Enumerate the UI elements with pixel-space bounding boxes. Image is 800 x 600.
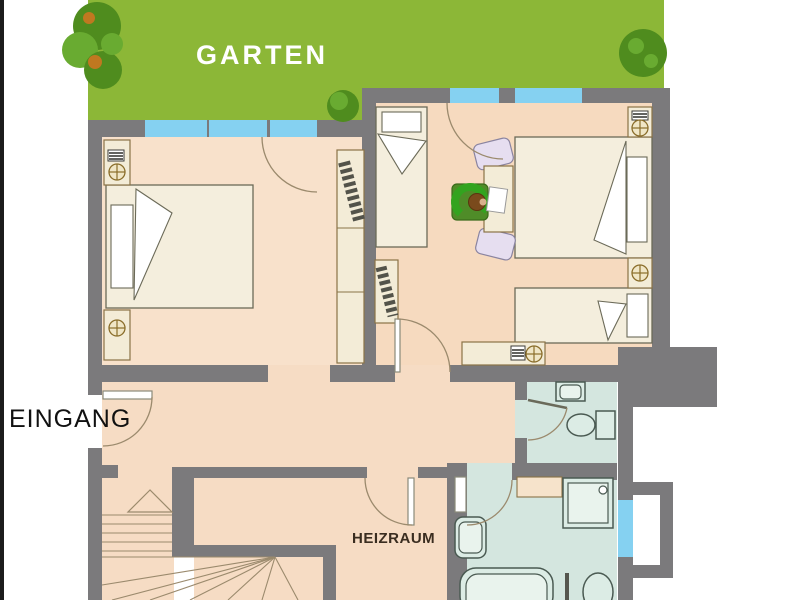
bed-twin-upper: [515, 137, 652, 258]
bed-double-left: [106, 185, 253, 308]
bedroom-right-door: [395, 319, 450, 372]
boiler-room-door: [365, 478, 414, 525]
bath-partition: [565, 573, 569, 600]
stair-direction-arrow: [128, 490, 172, 512]
floor-plan: GARTEN EINGANG HEIZRAUM: [0, 0, 800, 600]
tree-icon-middle: [327, 90, 359, 122]
bath-counter: [517, 477, 562, 497]
nightstand-left-top: [104, 140, 130, 185]
nightstand-right-top: [628, 107, 652, 137]
sideboard-right: [375, 260, 398, 323]
garden-label: GARTEN: [196, 40, 328, 71]
wc-sink: [556, 382, 585, 401]
nightstand-left-bottom: [104, 310, 130, 360]
wc-door: [528, 400, 567, 440]
bath-toilet: [583, 573, 613, 600]
wc-toilet: [567, 411, 615, 439]
bathtub: [460, 568, 553, 600]
boiler-room-label: HEIZRAUM: [352, 530, 435, 547]
tree-icon-right: [619, 29, 667, 77]
person-face: [480, 199, 487, 206]
staircase: [102, 490, 298, 600]
tree-icon-cluster-left: [62, 2, 123, 89]
page-edge-strip: [0, 0, 4, 600]
nightstand-right-middle: [628, 258, 652, 288]
garden-door-arc-left: [262, 137, 317, 192]
plan-overlay: [0, 0, 800, 600]
bed-single-top: [376, 107, 427, 247]
radiator-shelf-bottom: [462, 342, 545, 365]
entrance-label: EINGANG: [9, 405, 131, 434]
shower: [563, 478, 613, 528]
bed-twin-lower: [515, 288, 652, 343]
paper: [486, 187, 507, 213]
wardrobe-left: [337, 150, 364, 363]
